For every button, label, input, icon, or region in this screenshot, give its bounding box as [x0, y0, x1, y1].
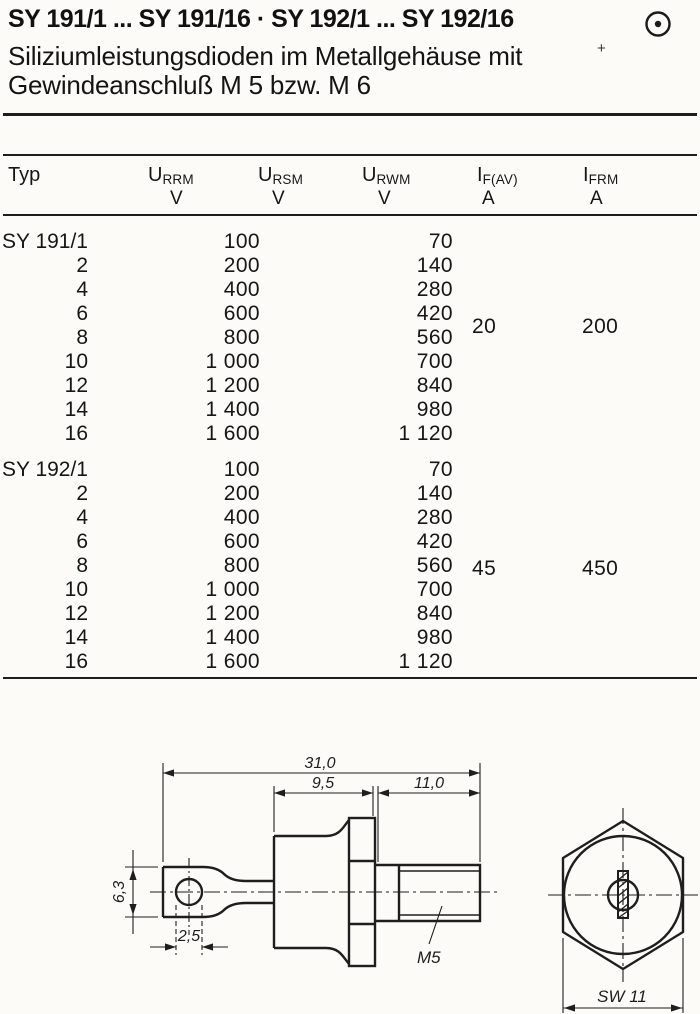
unit-label-ursm: V — [272, 188, 285, 210]
table-cell: 4 — [0, 506, 88, 530]
table-row: 4400280 — [0, 506, 700, 530]
unit-label-urwm: V — [378, 188, 391, 210]
subtitle-line-1: Siliziumleistungsdioden im Metallgehäuse… — [8, 41, 522, 71]
column-header-typ: Typ — [8, 164, 40, 187]
divider-table-bottom — [3, 677, 697, 679]
dimension-label-tab-height: 6,3 — [111, 881, 128, 903]
sy191-ifrm-value: 200 — [582, 315, 618, 339]
table-cell: 8 — [0, 326, 88, 350]
table-cell: 1 000 — [88, 578, 260, 602]
table-row: 121 200840 — [0, 374, 700, 398]
table-row: 2200140 — [0, 482, 700, 506]
table-cell: 70 — [260, 230, 453, 254]
dimension-label-hole: 2,5 — [177, 928, 200, 945]
table-cell: 100 — [88, 230, 260, 254]
table-cell: 840 — [260, 602, 453, 626]
page-subtitle: Siliziumleistungsdioden im Metallgehäuse… — [8, 42, 522, 100]
subtitle-line-2: Gewindeanschluß M 5 bzw. M 6 — [8, 70, 371, 100]
table-row: 6600420 — [0, 530, 700, 554]
threaded-stud — [375, 865, 480, 921]
table-cell: 1 600 — [88, 650, 260, 674]
thread-size-label: M5 — [417, 948, 441, 967]
table-cell: 700 — [260, 350, 453, 374]
table-cell: 200 — [88, 482, 260, 506]
table-cell: 6 — [0, 530, 88, 554]
table-cell: 1 200 — [88, 602, 260, 626]
dimension-label-body: 9,5 — [312, 775, 334, 792]
table-row: 4400280 — [0, 278, 700, 302]
table-cell: 400 — [88, 506, 260, 530]
table-cell: 70 — [260, 458, 453, 482]
table-cell: 100 — [88, 458, 260, 482]
table-cell: 8 — [0, 554, 88, 578]
table-row: 101 000700 — [0, 350, 700, 374]
divider-header-bottom — [3, 214, 697, 216]
table-cell: 12 — [0, 602, 88, 626]
table-cell: 10 — [0, 350, 88, 374]
sy192-table-block: SY 192/110070220014044002806600420880056… — [0, 458, 700, 674]
column-header-ifrm: IFRM — [583, 164, 618, 187]
table-cell: 1 120 — [260, 650, 453, 674]
column-header-urrm: URRM — [148, 164, 194, 187]
dimension-label-total: 31,0 — [304, 755, 335, 772]
divider-table-top — [3, 154, 697, 156]
table-cell: 980 — [260, 626, 453, 650]
table-cell: 280 — [260, 278, 453, 302]
table-cell: 12 — [0, 374, 88, 398]
table-cell: 600 — [88, 530, 260, 554]
table-cell: 6 — [0, 302, 88, 326]
column-header-ursm: URSM — [258, 164, 303, 187]
sy191-table-block: SY 191/110070220014044002806600420880056… — [0, 230, 700, 446]
table-cell: 1 120 — [260, 422, 453, 446]
datasheet-page: SY 191/1 ... SY 191/16 · SY 192/1 ... SY… — [0, 0, 700, 1014]
centerlines — [548, 808, 698, 982]
table-cell: 420 — [260, 530, 453, 554]
circled-dot-icon — [643, 9, 673, 39]
table-cell: 16 — [0, 422, 88, 446]
table-cell: 14 — [0, 398, 88, 422]
table-cell: 1 600 — [88, 422, 260, 446]
m5-leader-line — [429, 906, 442, 944]
table-cell: SY 191/1 — [0, 230, 88, 254]
table-cell: 1 400 — [88, 626, 260, 650]
table-cell: 1 200 — [88, 374, 260, 398]
column-header-ifav: IF(AV) — [477, 164, 518, 187]
unit-label-urrm: V — [170, 188, 183, 210]
unit-label-ifav: A — [482, 188, 495, 210]
divider-thick — [3, 113, 697, 116]
table-row: 161 6001 120 — [0, 650, 700, 674]
table-cell: 16 — [0, 650, 88, 674]
table-row: SY 192/110070 — [0, 458, 700, 482]
arrowheads — [129, 769, 480, 950]
side-view: 31,0 9,5 11,0 6,3 2,5 M5 — [111, 755, 497, 967]
table-cell: 840 — [260, 374, 453, 398]
table-cell: 560 — [260, 326, 453, 350]
package-drawing: 31,0 9,5 11,0 6,3 2,5 M5 — [0, 690, 700, 1014]
table-cell: 4 — [0, 278, 88, 302]
table-cell: 700 — [260, 578, 453, 602]
table-cell: 280 — [260, 506, 453, 530]
sy191-ifav-value: 20 — [472, 315, 496, 339]
sy192-ifav-value: 45 — [472, 557, 496, 581]
front-view: SW 11 — [548, 808, 698, 1013]
table-cell: 400 — [88, 278, 260, 302]
wrench-size-label: SW 11 — [597, 987, 647, 1006]
table-cell: SY 192/1 — [0, 458, 88, 482]
table-row: 2200140 — [0, 254, 700, 278]
registration-mark: + — [597, 40, 606, 57]
table-row: 161 6001 120 — [0, 422, 700, 446]
unit-label-ifrm: A — [590, 188, 603, 210]
table-row: 141 400980 — [0, 626, 700, 650]
table-cell: 10 — [0, 578, 88, 602]
table-cell: 800 — [88, 554, 260, 578]
table-row: 121 200840 — [0, 602, 700, 626]
table-cell: 420 — [260, 302, 453, 326]
table-cell: 2 — [0, 254, 88, 278]
sy192-ifrm-value: 450 — [582, 557, 618, 581]
table-cell: 200 — [88, 254, 260, 278]
table-cell: 14 — [0, 626, 88, 650]
column-header-urwm: URWM — [362, 164, 411, 187]
table-cell: 140 — [260, 254, 453, 278]
table-row: SY 191/110070 — [0, 230, 700, 254]
table-row: 101 000700 — [0, 578, 700, 602]
table-cell: 1 400 — [88, 398, 260, 422]
table-row: 141 400980 — [0, 398, 700, 422]
table-cell: 2 — [0, 482, 88, 506]
table-cell: 1 000 — [88, 350, 260, 374]
table-cell: 140 — [260, 482, 453, 506]
table-cell: 560 — [260, 554, 453, 578]
page-title: SY 191/1 ... SY 191/16 · SY 192/1 ... SY… — [8, 5, 514, 34]
dimension-label-stud: 11,0 — [414, 775, 444, 792]
table-cell: 800 — [88, 326, 260, 350]
table-cell: 600 — [88, 302, 260, 326]
table-cell: 980 — [260, 398, 453, 422]
